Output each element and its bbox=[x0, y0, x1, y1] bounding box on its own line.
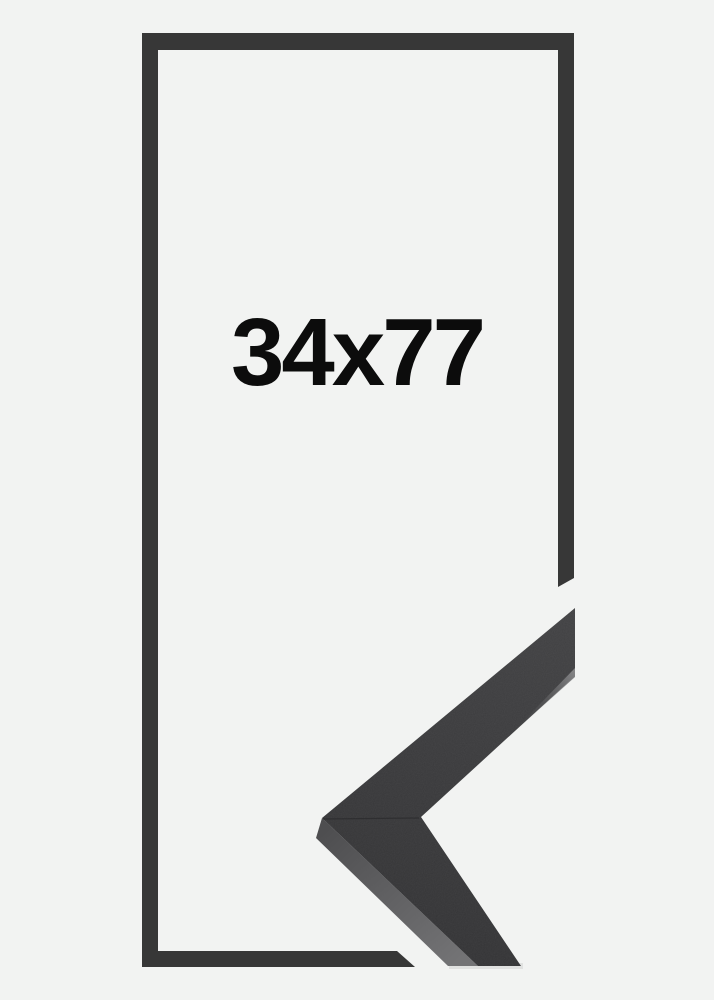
frame-outline-left-bar bbox=[142, 33, 158, 967]
frame-outline-right-bar bbox=[558, 33, 574, 587]
frame-illustration: 34x77 bbox=[0, 0, 714, 1000]
frame-product-image: 34x77 bbox=[0, 0, 714, 1000]
frame-outline-top-bar bbox=[142, 33, 574, 50]
frame-outline-bottom-bar bbox=[142, 951, 415, 967]
frame-size-label: 34x77 bbox=[231, 299, 483, 406]
